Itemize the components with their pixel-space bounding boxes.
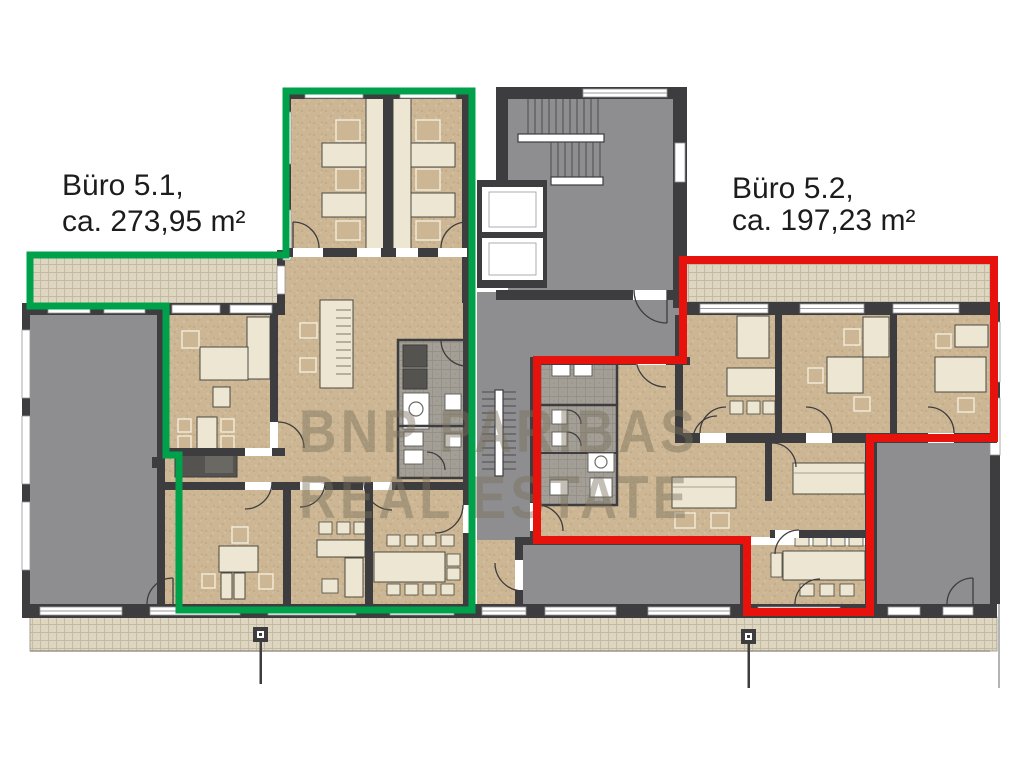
unit-5-1-label-line-2: ca. 273,95 m² xyxy=(62,205,245,238)
elevator-icon xyxy=(481,237,544,281)
counter xyxy=(793,463,865,494)
terrace-left xyxy=(30,258,283,303)
unit-5-2-label-line-1: Büro 5.2, xyxy=(732,172,854,205)
watermark-line-1: BNP PARIBAS xyxy=(299,398,699,465)
floor-plan-page: BNP PARIBAS REAL ESTATE Büro 5.1, ca. 27… xyxy=(0,0,1024,768)
unit-5-2-label-line-2: ca. 197,23 m² xyxy=(732,204,915,237)
cabinet xyxy=(403,369,427,389)
elevator-icon xyxy=(481,186,544,233)
unit-5-1-label-line-1: Büro 5.1, xyxy=(62,169,184,202)
meeting-table xyxy=(374,535,460,595)
cabinet xyxy=(403,345,427,367)
terrace-right xyxy=(688,263,990,302)
floor-plan-canvas: BNP PARIBAS REAL ESTATE Büro 5.1, ca. 27… xyxy=(0,0,1024,768)
room-gray-left xyxy=(28,315,157,604)
room-gray-mid-bottom xyxy=(523,545,747,604)
unit-5-1-midband-floor xyxy=(285,256,470,303)
watermark: BNP PARIBAS REAL ESTATE xyxy=(299,398,699,531)
lobby-floor xyxy=(477,292,683,357)
watermark-line-2: REAL ESTATE xyxy=(299,464,691,531)
